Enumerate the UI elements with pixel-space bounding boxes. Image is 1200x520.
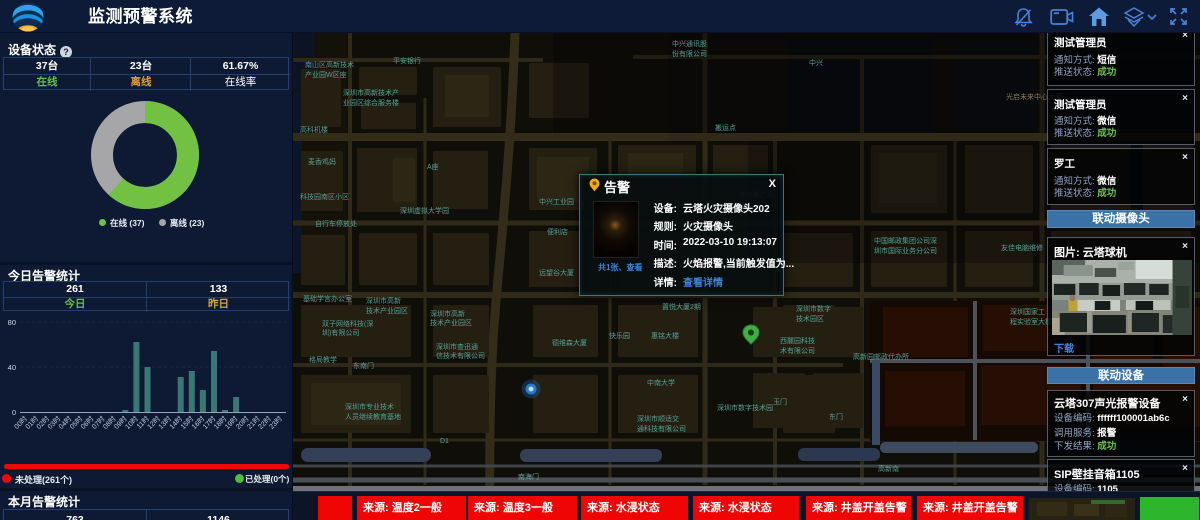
svg-text:通科技有限公司: 通科技有限公司 xyxy=(637,424,686,433)
svg-text:技术园区: 技术园区 xyxy=(796,314,824,323)
svg-text:中兴: 中兴 xyxy=(809,58,823,67)
svg-text:南海门: 南海门 xyxy=(518,472,539,481)
svg-text:高科机楼: 高科机楼 xyxy=(300,125,328,134)
svg-text:友佳电脑维修: 友佳电脑维修 xyxy=(1001,243,1043,252)
svg-text:人员继续教育基地: 人员继续教育基地 xyxy=(345,412,401,421)
svg-text:深圳市顺适交: 深圳市顺适交 xyxy=(637,414,679,423)
svg-text:平安银行: 平安银行 xyxy=(393,56,421,65)
svg-text:基础学言办公室: 基础学言办公室 xyxy=(303,294,352,303)
svg-text:信技术有限公司: 信技术有限公司 xyxy=(436,351,485,360)
svg-text:搬运点: 搬运点 xyxy=(715,123,736,132)
svg-text:玉门: 玉门 xyxy=(773,397,787,406)
svg-text:深圳市高新技术产: 深圳市高新技术产 xyxy=(343,88,399,97)
svg-text:深圳国家工: 深圳国家工 xyxy=(1010,307,1045,316)
svg-text:40: 40 xyxy=(8,363,16,372)
svg-text:0: 0 xyxy=(12,408,16,417)
svg-text:产业园W区座: 产业园W区座 xyxy=(305,70,347,79)
svg-text:份有限公司: 份有限公司 xyxy=(672,49,707,58)
svg-text:深圳市查迅通: 深圳市查迅通 xyxy=(436,342,478,351)
svg-text:惠铭大楼: 惠铭大楼 xyxy=(651,331,679,340)
svg-text:圳市国际业务分公司: 圳市国际业务分公司 xyxy=(874,246,937,255)
svg-text:业园区综合服务楼: 业园区综合服务楼 xyxy=(343,98,399,107)
svg-text:高新南: 高新南 xyxy=(878,464,899,473)
svg-text:术有限公司: 术有限公司 xyxy=(780,346,815,355)
svg-text:东南门: 东南门 xyxy=(353,361,374,370)
svg-text:深圳市数字: 深圳市数字 xyxy=(796,304,831,313)
svg-text:技术产业园区: 技术产业园区 xyxy=(366,306,408,315)
svg-text:A座: A座 xyxy=(427,162,439,171)
svg-text:深圳市数字技术园: 深圳市数字技术园 xyxy=(717,403,773,412)
svg-text:科技园南区小区: 科技园南区小区 xyxy=(300,192,349,201)
svg-text:深圳市高新: 深圳市高新 xyxy=(366,296,401,305)
svg-text:技术产业园区: 技术产业园区 xyxy=(430,318,472,327)
svg-text:深圳虚拟大学园: 深圳虚拟大学园 xyxy=(400,206,449,215)
svg-text:中兴通讯股: 中兴通讯股 xyxy=(672,39,707,48)
svg-text:程实验室大楼: 程实验室大楼 xyxy=(1010,317,1052,326)
svg-text:麦香鸡妈: 麦香鸡妈 xyxy=(308,157,336,166)
svg-text:德维森大厦: 德维森大厦 xyxy=(552,338,587,347)
svg-text:南山区高新技术: 南山区高新技术 xyxy=(305,60,354,69)
svg-text:格局教学: 格局教学 xyxy=(309,355,337,364)
svg-text:便利店: 便利店 xyxy=(547,227,568,236)
svg-text:中兴工业园: 中兴工业园 xyxy=(539,197,574,206)
svg-text:双子网络科技(深: 双子网络科技(深 xyxy=(322,319,373,328)
svg-text:置悦大厦2期: 置悦大厦2期 xyxy=(662,302,701,311)
svg-text:远望谷大厦: 远望谷大厦 xyxy=(539,268,574,277)
svg-text:中国邮政集团公司深: 中国邮政集团公司深 xyxy=(874,236,937,245)
svg-text:快乐园: 快乐园 xyxy=(609,331,630,340)
svg-text:高新园邮政代办所: 高新园邮政代办所 xyxy=(853,352,909,361)
svg-text:东门: 东门 xyxy=(829,412,843,421)
svg-text:自行车停放处: 自行车停放处 xyxy=(315,219,357,228)
svg-text:深圳市专业技术: 深圳市专业技术 xyxy=(345,402,394,411)
svg-text:西麓园科技: 西麓园科技 xyxy=(780,336,815,345)
svg-text:深圳市高新: 深圳市高新 xyxy=(430,309,465,318)
svg-text:中南大学: 中南大学 xyxy=(647,378,675,387)
svg-text:圳)有限公司: 圳)有限公司 xyxy=(322,328,359,337)
svg-text:D1: D1 xyxy=(440,438,449,445)
svg-text:80: 80 xyxy=(8,318,16,327)
